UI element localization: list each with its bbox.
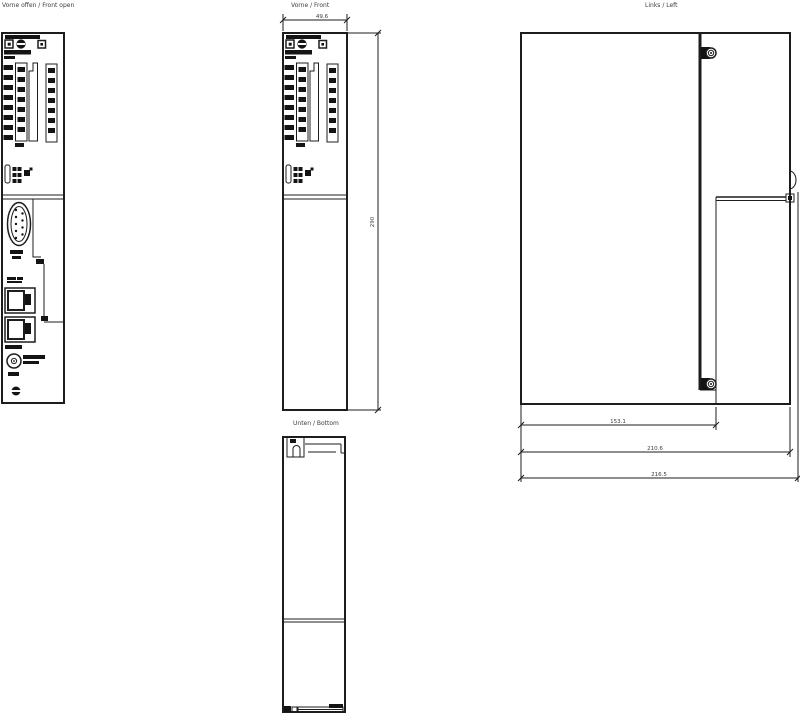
module-outline xyxy=(521,33,790,404)
dimension-height: 290 xyxy=(347,30,381,413)
port-label-print xyxy=(5,345,22,349)
door-cutout-edge xyxy=(33,199,41,257)
port-label-print xyxy=(12,256,21,259)
latch-tab xyxy=(41,316,48,321)
view-front: Vorne / Front 49.6 290 xyxy=(280,2,381,413)
slotted-screw-icon xyxy=(701,378,716,390)
dimension-width: 49.6 xyxy=(280,14,350,31)
slotted-screw-icon xyxy=(11,387,21,396)
view-left: Links / Left xyxy=(518,2,800,482)
slotted-screw-icon xyxy=(701,47,716,59)
port-label-print xyxy=(10,250,23,254)
front-open-lower-section xyxy=(5,199,64,396)
dimension-label: 153.1 xyxy=(610,419,626,425)
front-door-side-profile xyxy=(716,194,794,404)
dimension-depth-front-section: 153.1 xyxy=(518,404,719,482)
rj45-port-icon xyxy=(5,288,35,313)
dimension-label: 49.6 xyxy=(316,14,329,20)
dimension-label: 210.6 xyxy=(647,446,663,452)
dimension-label: 290 xyxy=(370,216,376,227)
port-label-print xyxy=(7,277,16,280)
latch-tab xyxy=(36,259,44,264)
port-label-print xyxy=(17,277,23,280)
dimension-depth-body: 210.6 xyxy=(518,407,793,457)
rail-hook-profile xyxy=(287,437,345,457)
view-title: Vorne offen / Front open xyxy=(2,2,74,9)
view-title: Unten / Bottom xyxy=(293,420,339,427)
power-connector-icon xyxy=(7,354,21,368)
view-title: Links / Left xyxy=(645,2,678,9)
db9-serial-connector-icon xyxy=(8,203,31,246)
power-label-print xyxy=(23,361,39,364)
port-label-print xyxy=(7,281,22,283)
rj45-port-icon xyxy=(5,317,35,342)
dimension-drawing: Vorne offen / Front open xyxy=(0,0,800,718)
view-front-open: Vorne offen / Front open xyxy=(2,2,74,403)
door-latch xyxy=(788,196,792,200)
power-label-print xyxy=(23,355,45,359)
bottom-connector-strip xyxy=(284,704,343,712)
view-bottom: Unten / Bottom xyxy=(283,420,345,712)
drawing-canvas: Vorne offen / Front open xyxy=(0,0,800,718)
module-outline xyxy=(283,437,345,712)
dimension-depth-total: 216.5 xyxy=(518,192,800,482)
power-label-print xyxy=(8,372,19,376)
view-title: Vorne / Front xyxy=(291,2,330,9)
dimension-label: 216.5 xyxy=(651,472,667,478)
